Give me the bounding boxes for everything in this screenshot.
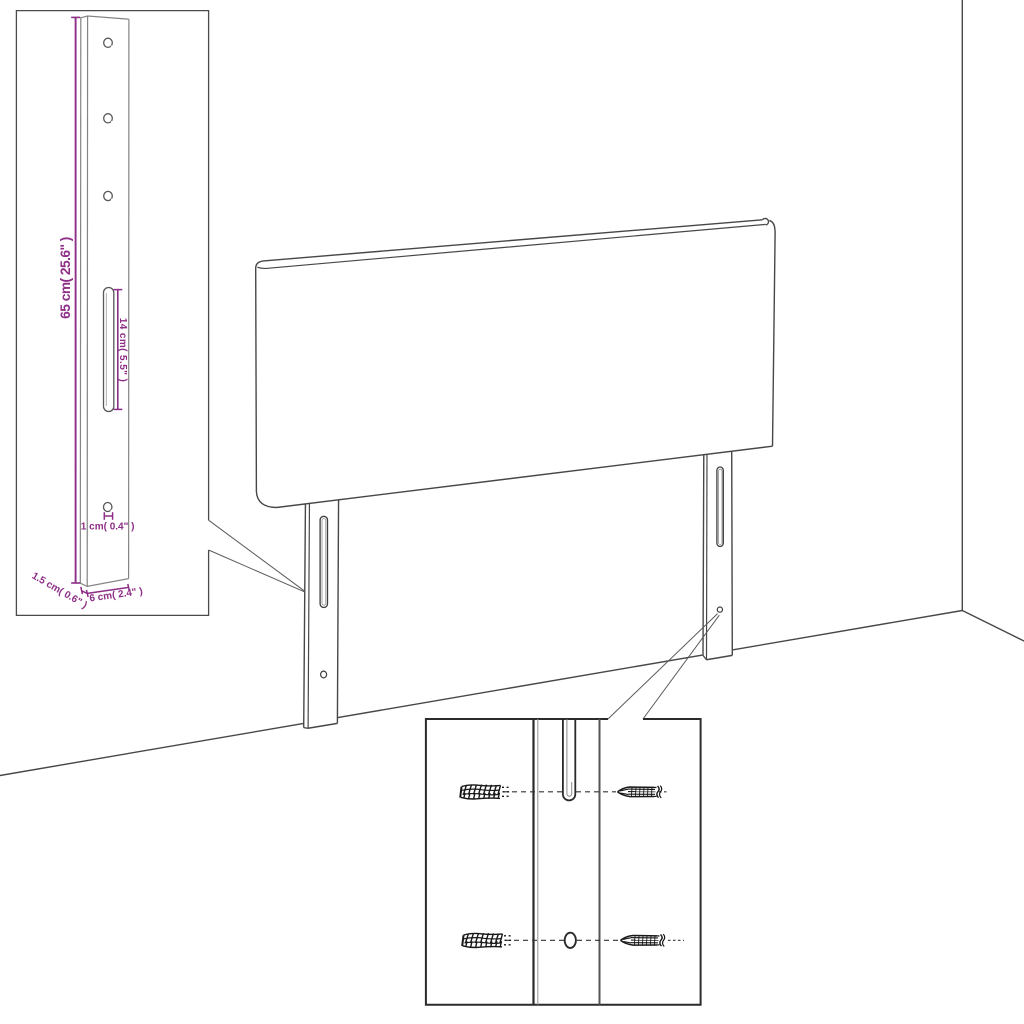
svg-text:1 cm( 0.4" ): 1 cm( 0.4" ) — [81, 522, 135, 533]
svg-text:65 cm( 25.6" ): 65 cm( 25.6" ) — [58, 237, 73, 319]
svg-text:14 cm( 5.5" ): 14 cm( 5.5" ) — [117, 318, 128, 382]
